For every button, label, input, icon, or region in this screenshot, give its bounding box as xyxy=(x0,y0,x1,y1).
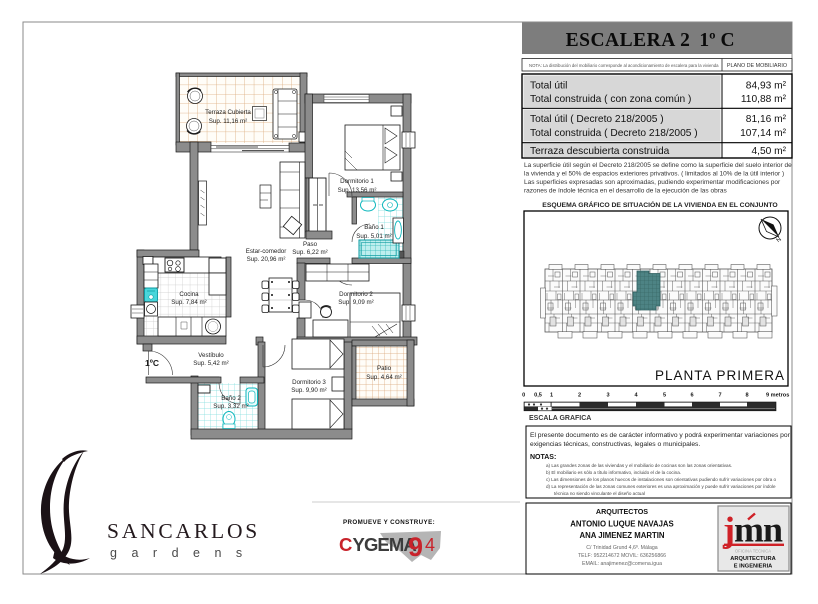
svg-text:Terraza Cubierta: Terraza Cubierta xyxy=(205,109,251,116)
svg-text:exigencias técnicas, construct: exigencias técnicas, constructivas, lega… xyxy=(530,441,700,448)
svg-text:3: 3 xyxy=(606,393,609,399)
svg-text:Dormitorio 1: Dormitorio 1 xyxy=(340,178,374,185)
svg-text:ESCALERA 2: ESCALERA 2 xyxy=(566,30,691,51)
svg-text:C: C xyxy=(339,534,352,555)
svg-text:ANA JIMENEZ MARTIN: ANA JIMENEZ MARTIN xyxy=(579,531,664,540)
svg-text:1ºC: 1ºC xyxy=(145,358,159,368)
svg-text:NOTAS:: NOTAS: xyxy=(530,454,556,461)
svg-text:ANTONIO LUQUE NAVAJAS: ANTONIO LUQUE NAVAJAS xyxy=(570,520,674,529)
svg-text:Total construida ( Decreto 21: Total construida ( Decreto 218/2005 ) xyxy=(530,128,698,139)
svg-text:9: 9 xyxy=(408,532,423,562)
svg-text:d) La representación de las z: d) La representación de las zonas comune… xyxy=(546,484,776,489)
svg-text:Baño 1: Baño 1 xyxy=(364,224,384,231)
svg-text:8: 8 xyxy=(745,393,748,399)
svg-text:Patio: Patio xyxy=(377,365,392,372)
svg-text:Sup. 9,90 m²: Sup. 9,90 m² xyxy=(291,387,326,394)
svg-text:b) El mobiliario es sólo a tí: b) El mobiliario es sólo a título inform… xyxy=(546,470,681,475)
svg-text:2: 2 xyxy=(578,393,581,399)
svg-text:La superficie útil según el De: La superficie útil según el Decreto 218/… xyxy=(524,162,792,169)
svg-text:Sup. 7,84 m²: Sup. 7,84 m² xyxy=(171,299,206,306)
svg-text:4: 4 xyxy=(425,535,435,555)
svg-text:Estar-comedor: Estar-comedor xyxy=(246,248,287,255)
svg-text:Terraza descubierta construida: Terraza descubierta construida xyxy=(530,146,670,157)
svg-text:ESQUEMA GRÁFICO DE SITUACIÓN D: ESQUEMA GRÁFICO DE SITUACIÓN DE LA VIVIE… xyxy=(542,200,777,209)
svg-text:ARQUITECTOS: ARQUITECTOS xyxy=(596,507,648,516)
svg-text:107,14 m²: 107,14 m² xyxy=(740,128,786,139)
svg-text:Paso: Paso xyxy=(303,241,318,248)
svg-text:Total útil ( Decreto 218/2005: Total útil ( Decreto 218/2005 ) xyxy=(530,114,664,125)
svg-text:Baño 2: Baño 2 xyxy=(221,395,241,402)
svg-text:la vivienda y el 50% de espaci: la vivienda y el 50% de espacios exterio… xyxy=(524,171,784,178)
svg-text:Vestíbulo: Vestíbulo xyxy=(198,352,224,359)
svg-text:ARQUITECTURA: ARQUITECTURA xyxy=(730,556,776,562)
svg-text:7: 7 xyxy=(718,393,721,399)
svg-text:PLANTA PRIMERA: PLANTA PRIMERA xyxy=(655,368,785,383)
svg-text:E INGENIERIA: E INGENIERIA xyxy=(734,564,773,570)
svg-text:6: 6 xyxy=(690,393,693,399)
svg-text:EMAIL: anajimenez@comena.igua: EMAIL: anajimenez@comena.igua xyxy=(582,561,662,567)
svg-text:Las superficies expresadas son: Las superficies expresadas son aproximad… xyxy=(524,179,781,186)
svg-text:81,16 m²: 81,16 m² xyxy=(746,114,787,125)
svg-text:SANCARLOS: SANCARLOS xyxy=(107,519,260,543)
svg-text:PROMUEVE Y CONSTRUYE:: PROMUEVE Y CONSTRUYE: xyxy=(343,519,435,526)
svg-text:Sup. 13,56 m²: Sup. 13,56 m² xyxy=(338,187,377,194)
svg-text:Sup. 9,09 m²: Sup. 9,09 m² xyxy=(338,299,373,306)
svg-text:Sup. 5,01 m²: Sup. 5,01 m² xyxy=(356,233,391,240)
svg-text:C/ Trinidad Grund 4,6º. Málaga: C/ Trinidad Grund 4,6º. Málaga xyxy=(586,545,658,551)
svg-text:1: 1 xyxy=(550,393,553,399)
svg-text:Total útil: Total útil xyxy=(530,81,567,92)
svg-text:ESCALA GRAFICA: ESCALA GRAFICA xyxy=(529,415,591,422)
svg-text:Sup. 20,96 m²: Sup. 20,96 m² xyxy=(247,256,286,263)
svg-text:Cocina: Cocina xyxy=(179,291,199,298)
svg-text:a) Las grandes zonas de las v: a) Las grandes zonas de las viviendas y … xyxy=(546,463,732,468)
svg-text:Sup. 4,64 m²: Sup. 4,64 m² xyxy=(366,374,401,381)
svg-text:5: 5 xyxy=(663,393,666,399)
svg-text:Dormitorio 2: Dormitorio 2 xyxy=(339,291,373,298)
svg-text:Sup. 5,42 m²: Sup. 5,42 m² xyxy=(193,360,228,367)
svg-text:0,5: 0,5 xyxy=(534,393,542,399)
svg-text:Dormitorio 3: Dormitorio 3 xyxy=(292,379,326,386)
svg-text:PLANO DE MOBILIARIO: PLANO DE MOBILIARIO xyxy=(727,63,787,69)
svg-text:4,50 m²: 4,50 m² xyxy=(751,146,786,157)
svg-text:Sup. 11,16 m²: Sup. 11,16 m² xyxy=(209,118,247,125)
svg-text:c) Las dimensiones de los pla: c) Las dimensiones de los planos huecos … xyxy=(546,477,777,482)
svg-text:gardens: gardens xyxy=(110,546,257,560)
svg-text:Sup. 3,32 m²: Sup. 3,32 m² xyxy=(213,403,248,410)
svg-text:84,93 m²: 84,93 m² xyxy=(746,81,787,92)
svg-text:Total construida ( con zona c: Total construida ( con zona común ) xyxy=(530,94,691,105)
svg-text:razones de índole técnica en e: razones de índole técnica en el desarrol… xyxy=(524,188,727,195)
svg-text:110,88 m²: 110,88 m² xyxy=(741,94,787,105)
svg-text:mn: mn xyxy=(734,510,783,550)
svg-text:9 metros: 9 metros xyxy=(766,393,789,399)
svg-text:El presente documento es de ca: El presente documento es de carácter inf… xyxy=(530,432,791,439)
svg-text:técnica no siendo vinculante e: técnica no siendo vinculante el diseño a… xyxy=(554,491,645,496)
svg-text:1º C: 1º C xyxy=(699,30,734,51)
svg-text:Sup. 6,22 m²: Sup. 6,22 m² xyxy=(292,249,327,256)
svg-text:TELF: 952214672 MOVIL: 6362: TELF: 952214672 MOVIL: 636256866 xyxy=(578,553,666,559)
svg-text:YGEMA: YGEMA xyxy=(353,534,417,555)
svg-text:0: 0 xyxy=(522,393,525,399)
svg-text:NOTA: La distribución del mobi: NOTA: La distribución del mobiliario cor… xyxy=(529,63,719,68)
svg-text:OFICINA TECNICA: OFICINA TECNICA xyxy=(735,549,771,554)
